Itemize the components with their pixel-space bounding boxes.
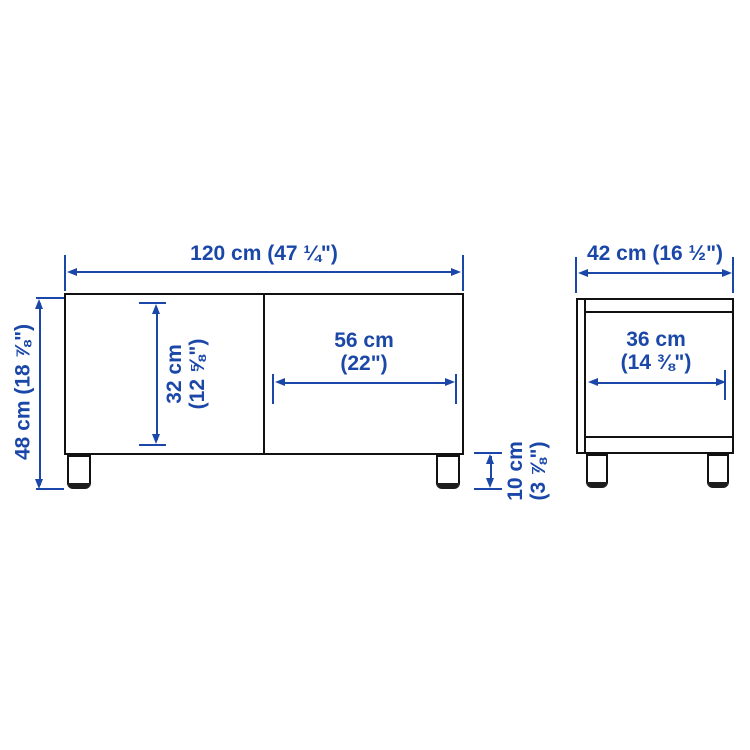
arrowhead-left-icon <box>67 268 77 276</box>
door-width-cm: 56 cm <box>264 329 464 352</box>
arrowhead-up-icon <box>152 304 160 314</box>
side-back-leg <box>707 454 729 488</box>
arrowhead-down-icon <box>152 434 160 444</box>
arrowhead-up-icon <box>35 299 43 309</box>
arrowhead-right-icon <box>451 268 461 276</box>
dim-line <box>282 382 447 384</box>
leg-height-cm: 10 cm <box>504 441 527 501</box>
dim-tick <box>455 374 457 404</box>
dim-line <box>585 272 725 274</box>
dim-line <box>39 303 41 485</box>
arrowhead-left-icon <box>275 378 285 386</box>
front-right-leg <box>436 455 460 489</box>
front-left-leg <box>67 455 91 489</box>
arrowhead-down-icon <box>35 479 43 489</box>
interior-depth-inch: (14 ⅜") <box>556 351 750 374</box>
arrowhead-right-icon <box>716 378 726 386</box>
leg-height-label: 10 cm(3 ⅞") <box>504 441 550 501</box>
door-width-label: 56 cm(22") <box>264 329 464 375</box>
dim-line <box>597 382 717 384</box>
dim-tick <box>474 488 502 490</box>
interior-height-label: 32 cm(12 ⅝") <box>163 339 209 410</box>
dim-tick <box>272 374 274 404</box>
leg-height-inch: (3 ⅞") <box>527 441 550 501</box>
side-cabinet-outline <box>576 298 734 454</box>
overall-width-label: 120 cm (47 ¼") <box>64 242 464 265</box>
side-top-panel-line <box>586 311 732 313</box>
interior-height-cm: 32 cm <box>163 339 186 410</box>
dim-line <box>75 271 453 273</box>
dimension-diagram: 120 cm (47 ¼") 48 cm (18 ⅞") 32 cm(12 ⅝"… <box>0 0 750 750</box>
arrowhead-left-icon <box>588 378 598 386</box>
arrowhead-up-icon <box>486 454 494 464</box>
dim-tick <box>139 444 166 446</box>
overall-height-label: 48 cm (18 ⅞") <box>12 324 35 460</box>
arrowhead-right-icon <box>722 269 732 277</box>
door-width-inch: (22") <box>264 352 464 375</box>
arrowhead-down-icon <box>486 478 494 488</box>
arrowhead-right-icon <box>445 378 455 386</box>
dim-line <box>156 308 158 440</box>
side-front-panel-line <box>584 300 586 452</box>
side-bottom-panel-line <box>586 436 732 438</box>
side-front-leg <box>586 454 608 488</box>
interior-depth-label: 36 cm(14 ⅜") <box>556 328 750 374</box>
overall-depth-label: 42 cm (16 ½") <box>576 242 734 265</box>
arrowhead-left-icon <box>578 269 588 277</box>
interior-height-inch: (12 ⅝") <box>186 339 209 410</box>
interior-depth-cm: 36 cm <box>556 328 750 351</box>
